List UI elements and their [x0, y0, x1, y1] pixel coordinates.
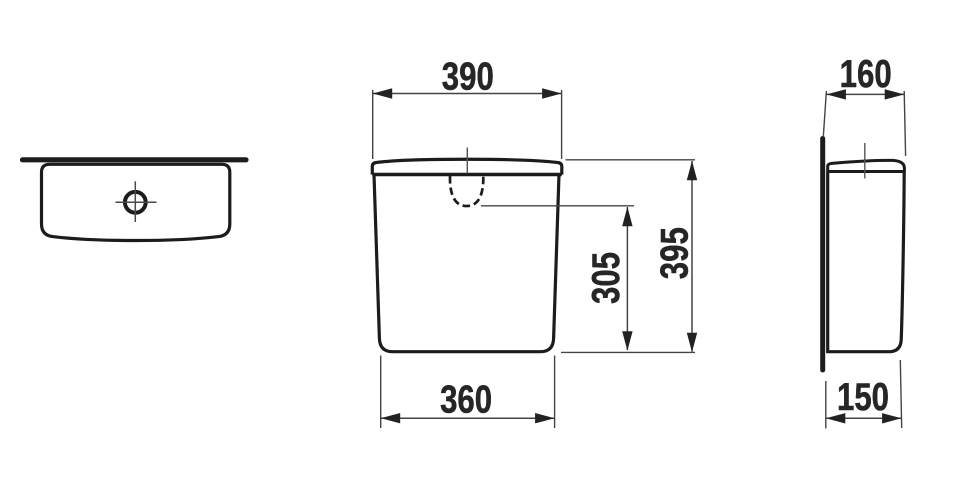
svg-text:395: 395 — [653, 227, 696, 279]
svg-text:390: 390 — [442, 55, 494, 98]
svg-text:360: 360 — [440, 378, 492, 421]
svg-text:305: 305 — [585, 252, 628, 304]
svg-text:160: 160 — [840, 53, 892, 96]
svg-text:150: 150 — [837, 376, 889, 419]
